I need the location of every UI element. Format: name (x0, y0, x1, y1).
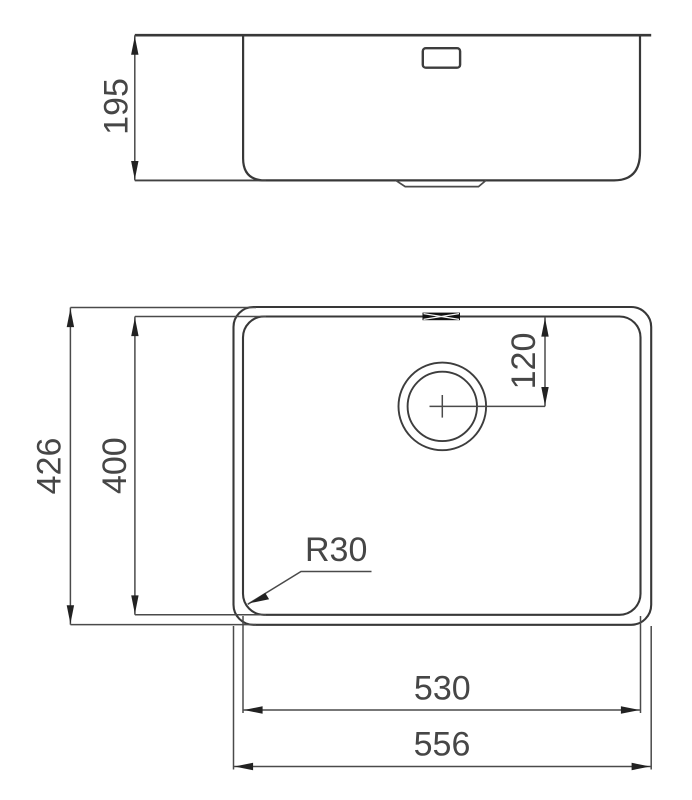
svg-text:120: 120 (505, 333, 543, 390)
svg-text:195: 195 (97, 78, 135, 135)
svg-text:R30: R30 (305, 531, 367, 569)
svg-text:426: 426 (30, 438, 68, 495)
svg-text:400: 400 (96, 437, 134, 494)
svg-text:530: 530 (414, 670, 471, 708)
svg-text:556: 556 (414, 726, 471, 764)
